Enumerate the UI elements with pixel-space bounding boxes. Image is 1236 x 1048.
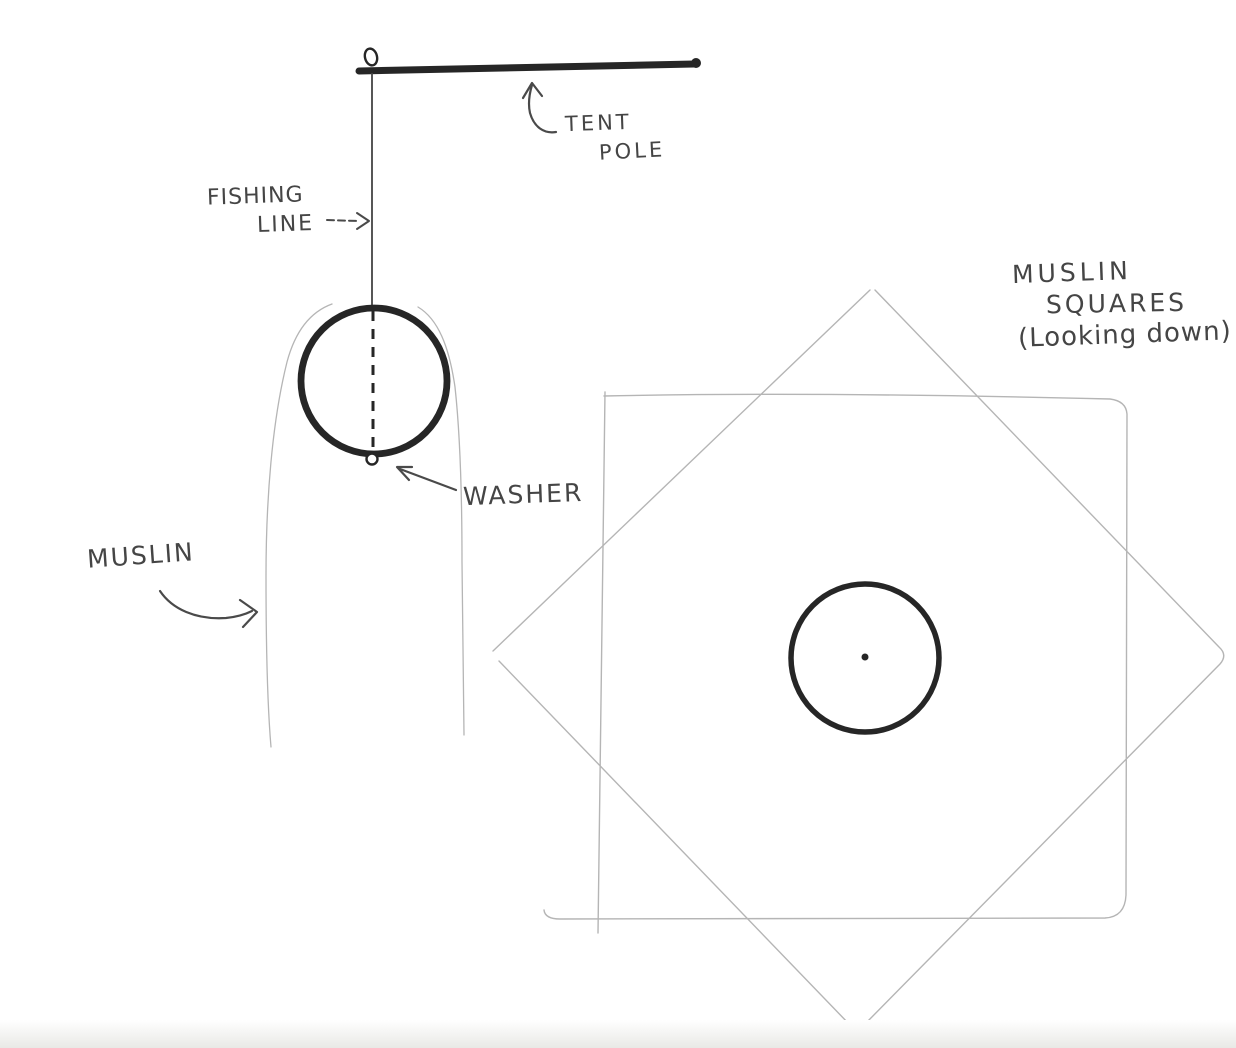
tent-pole-label-line2: POLE (598, 139, 665, 163)
plan-view-title-line1: MUSLIN (1012, 258, 1133, 287)
plan-view-title-line2: SQUARES (1046, 290, 1187, 317)
diamond-lower-left-edge (499, 661, 850, 1025)
muslin-square-straight (544, 392, 1127, 933)
tent-pole-end-knob (691, 58, 701, 68)
fishing-line-label-line1: FISHING (207, 184, 304, 209)
square-left-edge (598, 392, 605, 933)
muslin-label: MUSLIN (86, 539, 195, 571)
scan-edge-shadow (0, 1020, 1236, 1048)
muslin-arrow-shaft (160, 591, 252, 618)
fishing-line-arrow (327, 213, 369, 229)
muslin-arrow (160, 591, 257, 627)
tent-pole-arrow (523, 83, 556, 132)
plan-view-center-dot (862, 654, 869, 661)
fishing-line-knot-loop (363, 47, 379, 66)
tent-pole-label-line1: TENT (565, 112, 632, 135)
fishing-line-arrowhead (357, 213, 369, 229)
tent-pole-arrow-shaft (529, 85, 556, 132)
plan-view-title-line3: (Looking down) (1018, 318, 1233, 351)
washer-label: WASHER (463, 480, 584, 509)
washer-loop (367, 454, 378, 465)
fishing-line-label-line2: LINE (257, 213, 315, 237)
square-top-right-bottom-edge (544, 394, 1127, 919)
tent-pole-line (359, 64, 694, 71)
washer-arrow (397, 467, 456, 490)
sketch-page: TENT POLE FISHING LINE WASHER MUSLIN MUS… (0, 0, 1236, 1048)
diamond-upper-left-edge (493, 290, 870, 651)
tent-pole-arrowhead (523, 83, 542, 98)
fishing-line-arrow-shaft (327, 220, 358, 221)
